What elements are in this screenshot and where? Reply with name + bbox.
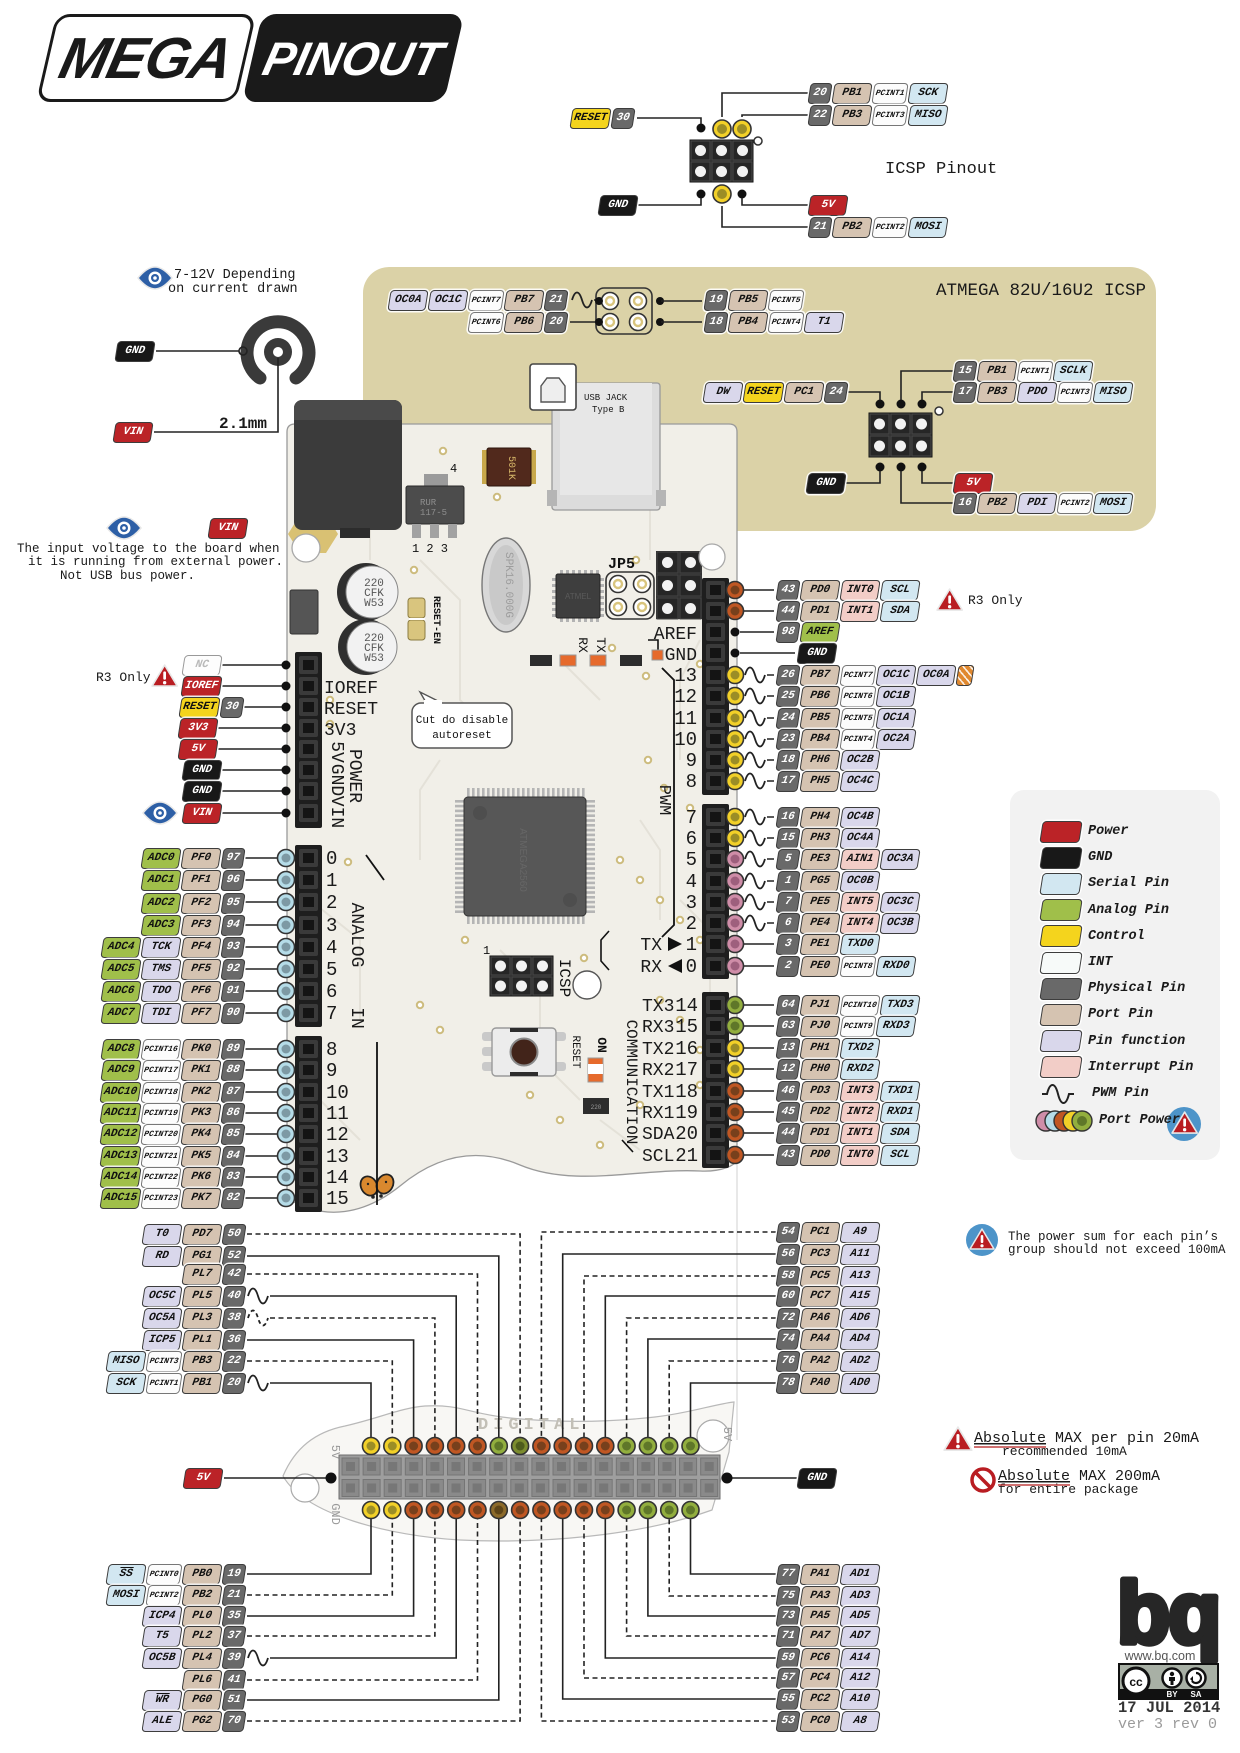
svg-text:2: 2 (686, 913, 697, 935)
svg-text:group should not exceed 100mA: group should not exceed 100mA (1008, 1243, 1226, 1257)
svg-text:SDA: SDA (642, 1125, 675, 1145)
svg-text:13: 13 (674, 665, 697, 687)
svg-text:TX: TX (593, 637, 608, 653)
svg-text:POWER: POWER (344, 749, 364, 803)
svg-text:8: 8 (686, 771, 697, 793)
svg-text:www.bq.com: www.bq.com (1124, 1649, 1196, 1663)
svg-text:13: 13 (326, 1146, 349, 1168)
svg-text:21: 21 (675, 1145, 698, 1167)
svg-text:The power sum for each pin’s: The power sum for each pin’s (1008, 1230, 1218, 1244)
svg-text:16: 16 (675, 1038, 698, 1060)
svg-text:on current drawn: on current drawn (168, 282, 298, 297)
svg-text:for entire package: for entire package (998, 1482, 1138, 1497)
svg-text:cc: cc (1129, 1675, 1143, 1689)
svg-text:7: 7 (326, 1003, 337, 1025)
svg-text:COMMUNICATION: COMMUNICATION (622, 1020, 640, 1145)
svg-text:RESET: RESET (569, 1035, 581, 1068)
svg-text:R3 Only: R3 Only (968, 593, 1023, 608)
svg-text:ATMEL: ATMEL (565, 592, 592, 601)
svg-text:Type B: Type B (592, 405, 625, 415)
svg-text:ver 3 rev 0: ver 3 rev 0 (1118, 1716, 1217, 1733)
svg-text:12: 12 (326, 1124, 349, 1146)
svg-text:9: 9 (686, 750, 697, 772)
svg-text:recommended 10mA: recommended 10mA (1002, 1444, 1127, 1459)
svg-text:2: 2 (326, 892, 337, 914)
svg-text:TX: TX (640, 936, 662, 956)
svg-text:R3 Only: R3 Only (96, 670, 151, 685)
svg-text:TX3: TX3 (642, 997, 674, 1017)
svg-text:RESET-EN: RESET-EN (430, 596, 441, 644)
svg-text:15: 15 (675, 1016, 698, 1038)
svg-text:0: 0 (686, 956, 697, 978)
svg-text:11: 11 (674, 708, 697, 730)
svg-text:6: 6 (326, 981, 337, 1003)
svg-text:12: 12 (674, 686, 697, 708)
svg-text:6: 6 (686, 828, 697, 850)
svg-text:1: 1 (686, 934, 697, 956)
svg-text:17 JUL 2014: 17 JUL 2014 (1118, 1699, 1220, 1717)
svg-text:3V3: 3V3 (324, 721, 356, 741)
svg-text:0: 0 (326, 848, 337, 870)
svg-text:W53: W53 (364, 653, 384, 665)
svg-text:RX: RX (575, 637, 590, 653)
svg-text:4: 4 (450, 462, 457, 476)
svg-text:15: 15 (326, 1188, 349, 1210)
svg-text:20: 20 (675, 1123, 698, 1145)
svg-text:10: 10 (674, 729, 697, 751)
svg-text:The input voltage to the board: The input voltage to the board when (17, 542, 280, 556)
svg-text:8: 8 (326, 1039, 337, 1061)
svg-text:Not USB bus power.: Not USB bus power. (60, 569, 195, 583)
svg-text:ON: ON (594, 1037, 609, 1053)
svg-text:RUR: RUR (420, 498, 437, 508)
svg-text:14: 14 (326, 1167, 349, 1189)
svg-text:ATMEGA2560: ATMEGA2560 (517, 828, 528, 892)
svg-text:BY: BY (1166, 1690, 1178, 1699)
svg-text:3: 3 (326, 915, 337, 937)
svg-text:RESET: RESET (324, 700, 378, 720)
svg-text:17: 17 (675, 1059, 698, 1081)
svg-text:5: 5 (686, 849, 697, 871)
svg-text:117-5: 117-5 (420, 508, 447, 518)
svg-text:GND: GND (326, 764, 346, 796)
svg-text:RX3: RX3 (642, 1018, 674, 1038)
svg-text:JP5: JP5 (608, 556, 635, 573)
svg-text:W53: W53 (364, 598, 384, 610)
svg-text:IN: IN (346, 1007, 366, 1029)
svg-text:USB JACK: USB JACK (584, 393, 628, 403)
svg-text:ICSP: ICSP (555, 959, 573, 997)
svg-text:SPK16.000G: SPK16.000G (502, 552, 514, 618)
svg-text:RX: RX (640, 958, 662, 978)
svg-text:DIGITAL: DIGITAL (478, 1416, 584, 1435)
svg-text:it is running from external po: it is running from external power. (28, 555, 283, 569)
svg-text:RX2: RX2 (642, 1061, 674, 1081)
svg-text:7-12V Depending: 7-12V Depending (174, 268, 296, 283)
svg-text:5: 5 (326, 959, 337, 981)
svg-text:SA: SA (1190, 1690, 1201, 1699)
svg-text:3: 3 (686, 892, 697, 914)
svg-text:Cut do disable: Cut do disable (416, 715, 508, 727)
svg-text:TX2: TX2 (642, 1040, 674, 1060)
svg-text:RX1: RX1 (642, 1104, 674, 1124)
svg-text:TX1: TX1 (642, 1083, 674, 1103)
svg-text:AREF: AREF (654, 625, 697, 645)
svg-text:ATMEGA 82U/16U2 ICSP: ATMEGA 82U/16U2 ICSP (936, 281, 1146, 301)
svg-text:SCL: SCL (642, 1147, 674, 1167)
svg-text:5V: 5V (720, 1427, 734, 1442)
svg-text:1: 1 (483, 944, 490, 958)
svg-text:autoreset: autoreset (432, 730, 491, 742)
svg-text:18: 18 (675, 1081, 698, 1103)
svg-text:5V: 5V (326, 741, 346, 763)
svg-text:220: 220 (591, 1104, 602, 1111)
svg-text:bq: bq (1117, 1565, 1219, 1662)
svg-text:9: 9 (326, 1060, 337, 1082)
svg-text:7: 7 (686, 807, 697, 829)
svg-text:GND: GND (328, 1503, 342, 1525)
svg-text:2.1mm: 2.1mm (219, 415, 267, 433)
svg-text:19: 19 (675, 1102, 698, 1124)
svg-text:ICSP Pinout: ICSP Pinout (885, 160, 997, 179)
svg-text:10: 10 (326, 1082, 349, 1104)
svg-text:1 2 3: 1 2 3 (412, 542, 448, 556)
svg-text:4: 4 (686, 871, 697, 893)
svg-text:1: 1 (326, 870, 337, 892)
svg-text:IOREF: IOREF (324, 679, 378, 699)
svg-text:14: 14 (675, 995, 698, 1017)
svg-text:GND: GND (665, 646, 697, 666)
svg-text:4: 4 (326, 937, 337, 959)
svg-text:PWM: PWM (654, 785, 673, 816)
svg-text:11: 11 (326, 1103, 349, 1125)
svg-text:501K: 501K (505, 456, 516, 480)
svg-text:VIN: VIN (326, 796, 346, 828)
svg-text:ANALOG: ANALOG (346, 903, 366, 968)
